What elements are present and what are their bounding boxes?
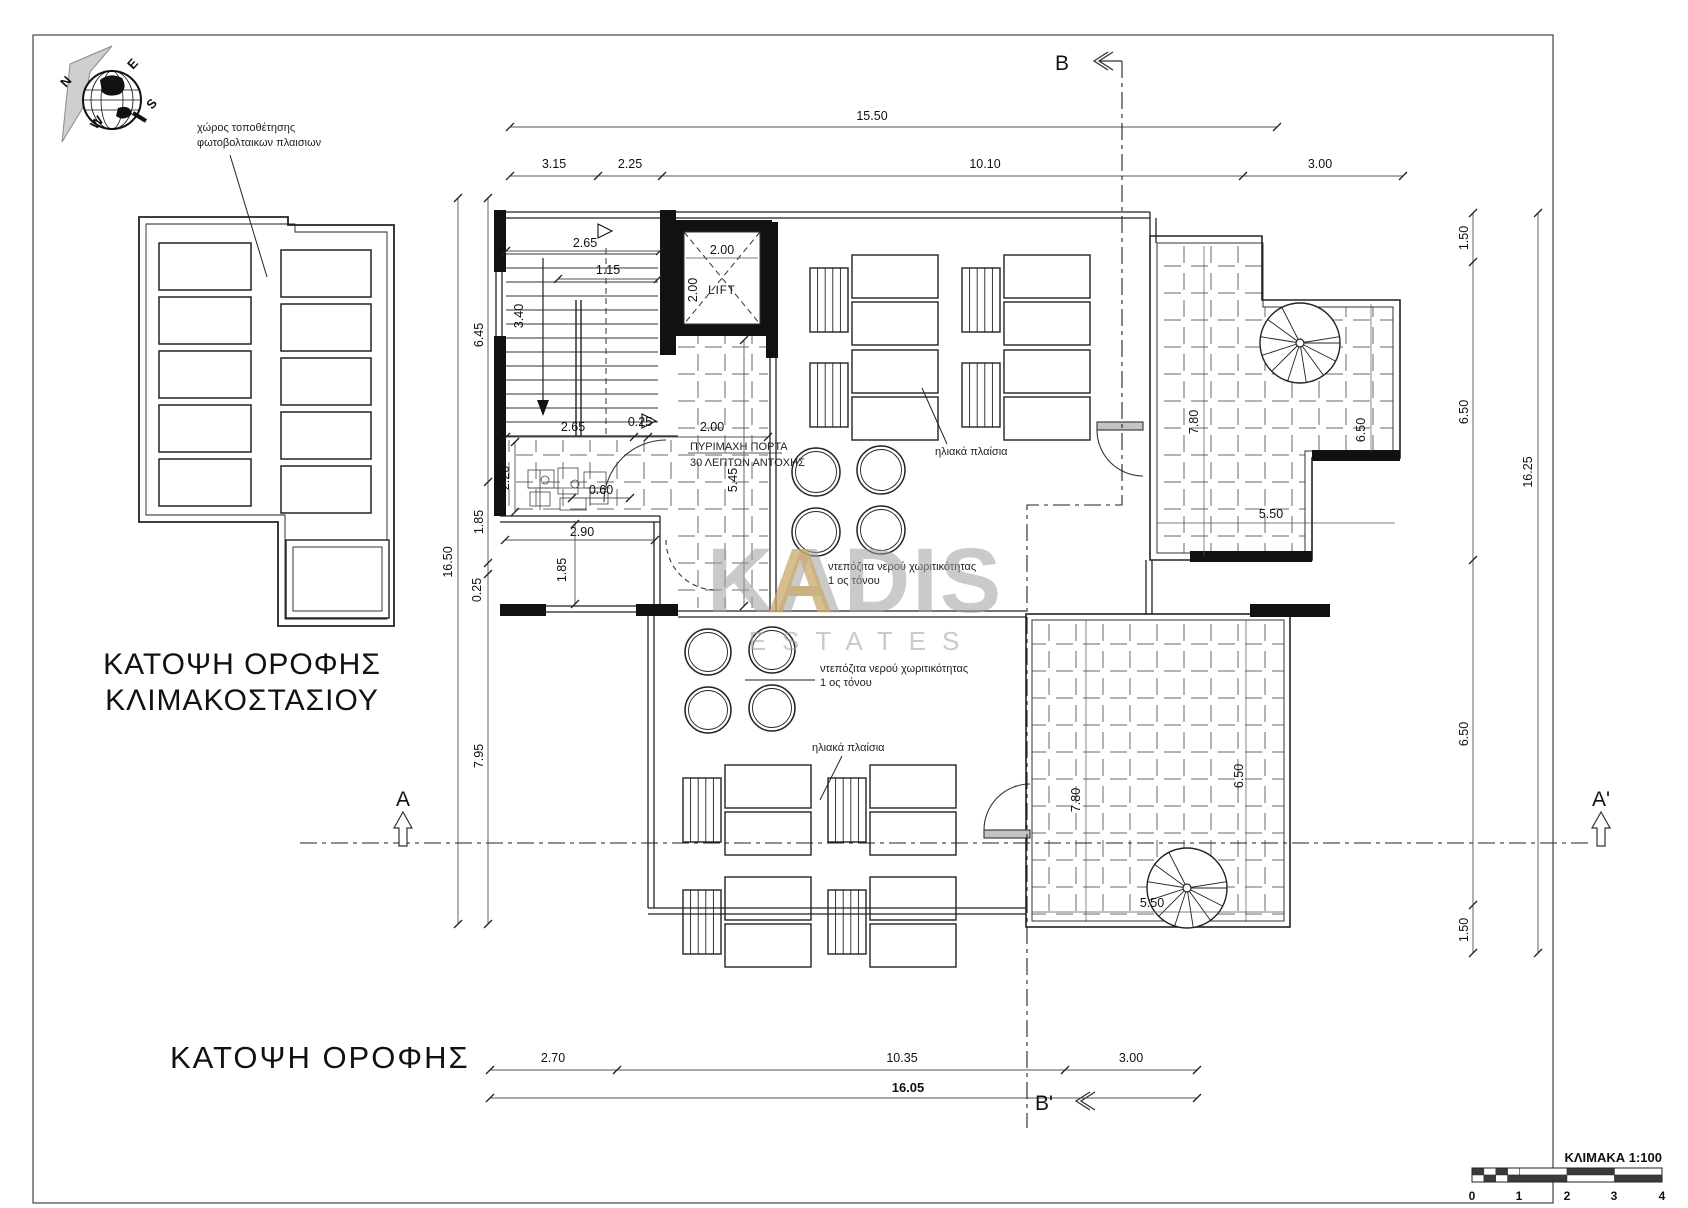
dim-label: 1.85 [472,510,486,534]
watermark: KADIS A ESTATES [707,530,1003,656]
door-swing [984,784,1030,830]
dim-label: 2.65 [573,236,597,250]
water-tank [792,448,840,496]
tank-note-bottom-line1: ντεπόζιτα νερού χωριτικότητας [820,663,968,675]
floor-plan-drawing: N E S W χώρος τοποθέτησης φωτοβολταικων … [0,0,1688,1208]
dim-label: 1.85 [555,558,569,582]
door-swing [1097,430,1143,476]
dim-label: 7.95 [472,744,486,768]
dim-label: 2.65 [561,420,585,434]
dim-label: 6.50 [1232,764,1246,788]
dim-label: 3.40 [512,304,526,328]
dim-label: 6.50 [1457,722,1471,746]
dim-label: 16.05 [892,1080,925,1095]
dim-label: 7.80 [1069,788,1083,812]
floor-plan-page: N E S W χώρος τοποθέτησης φωτοβολταικων … [0,0,1688,1208]
scale-number: 0 [1469,1189,1476,1203]
water-tank [749,685,795,731]
dim-label: 2.90 [570,525,594,539]
solar-panel-cluster [828,765,956,855]
dim-label: 2.70 [541,1051,565,1065]
solar-panel-cluster [828,877,956,967]
solar-panel-cluster [810,350,938,440]
scale-number: 2 [1564,1189,1571,1203]
dim-label: 2.00 [686,278,700,302]
dim-label: 15.50 [856,109,887,123]
section-arrow-icon [394,812,412,846]
dim-label: 1.50 [1457,226,1471,250]
dim-label: 7.80 [1187,410,1201,434]
scale-number: 3 [1611,1189,1618,1203]
pv-note-line2: φωτοβολταικων πλαισιων [197,137,322,149]
lift-shaft: 2.00 2.00 LIFT [672,220,772,336]
dim-label: 0.25 [470,578,484,602]
left-plan-title-line2: ΚΛΙΜΑΚΟΣΤΑΣΙΟΥ [105,684,379,717]
compass-e: E [124,55,141,72]
section-marker-b: B [1055,52,1069,75]
solar-panel-cluster [683,877,811,967]
dim-label: 6.50 [1354,418,1368,442]
section-arrow-icon [1094,52,1122,70]
dim-label: 6.45 [472,323,486,347]
tank-note-bottom-line2: 1 ος τόνου [820,677,872,689]
dim-label: 3.00 [1119,1051,1143,1065]
scale-number: 4 [1659,1189,1666,1203]
dim-label: 1.15 [596,263,620,277]
compass-rose-icon: N E S W [57,46,160,142]
scale-bar: ΚΛΙΜΑΚΑ 1:100 0 1 2 3 4 [1469,1150,1666,1203]
section-marker-b-prime: B' [1035,1092,1053,1115]
section-marker-a-prime: A' [1592,788,1610,811]
compass-s: S [143,95,160,112]
fire-door-note-line1: ΠΥΡΙΜΑΧΗ ΠΟΡΤΑ [690,441,788,453]
dim-label: 5.50 [1259,507,1283,521]
fire-door-note-line2: 30 ΛΕΠΤΩΝ ΑΝΤΟΧΗΣ [690,457,805,469]
dim-label: 16.25 [1521,456,1535,487]
dim-label: 2.20 [498,466,512,490]
section-arrow-icon [1592,812,1610,846]
watermark-subtitle: ESTATES [749,626,976,656]
left-plan-title-line1: ΚΑΤΟΨΗ ΟΡΟΦΗΣ [103,648,381,681]
dim-label: 0.25 [628,415,652,429]
solar-panel-cluster [962,255,1090,345]
section-marker-a: A [396,788,410,811]
watermark-accent-letter: A [767,530,833,632]
scale-label: ΚΛΙΜΑΚΑ 1:100 [1564,1150,1662,1165]
dim-label: 5.45 [726,468,740,492]
dim-label: 1.50 [1457,918,1471,942]
door-leaf [1097,422,1143,430]
pv-note-line1: χώρος τοποθέτησης [197,122,295,134]
spiral-stair [1147,848,1227,928]
dim-label: 10.10 [969,157,1000,171]
water-tank [685,687,731,733]
scale-number: 1 [1516,1189,1523,1203]
main-plan-title: ΚΑΤΟΨΗ ΟΡΟΦΗΣ [170,1040,470,1075]
dim-label: 5.50 [1140,896,1164,910]
door-leaf [984,830,1030,838]
solar-note-bottom: ηλιακά πλαίσια [812,742,885,754]
section-arrow-icon [1076,1092,1095,1110]
dim-label: 0.60 [589,483,613,497]
water-tank [685,629,731,675]
water-tank [857,446,905,494]
stairwell-roof-plan: χώρος τοποθέτησης φωτοβολταικων πλαισιων… [103,122,394,717]
dim-label: 2.00 [710,243,734,257]
dim-label: 3.00 [1308,157,1332,171]
pv-note-leader [230,155,267,277]
solar-panel-cluster [810,255,938,345]
solar-panel-cluster [683,765,811,855]
dim-label: 16.50 [441,546,455,577]
solar-panel-cluster [962,350,1090,440]
corridor-tiles-2 [506,440,678,514]
dim-label: 2.25 [618,157,642,171]
spiral-stair [1260,303,1340,383]
watermark-name: KADIS [707,530,1003,632]
section-line-b [1027,61,1122,1128]
dim-label: 3.15 [542,157,566,171]
dim-label: 2.00 [700,420,724,434]
dim-label: 10.35 [886,1051,917,1065]
stair-opening [286,540,389,618]
pv-panel-array [159,243,371,513]
dim-label: 6.50 [1457,400,1471,424]
lift-label: LIFT [708,285,736,297]
staircase [506,224,658,436]
solar-note-top: ηλιακά πλαίσια [935,446,1008,458]
